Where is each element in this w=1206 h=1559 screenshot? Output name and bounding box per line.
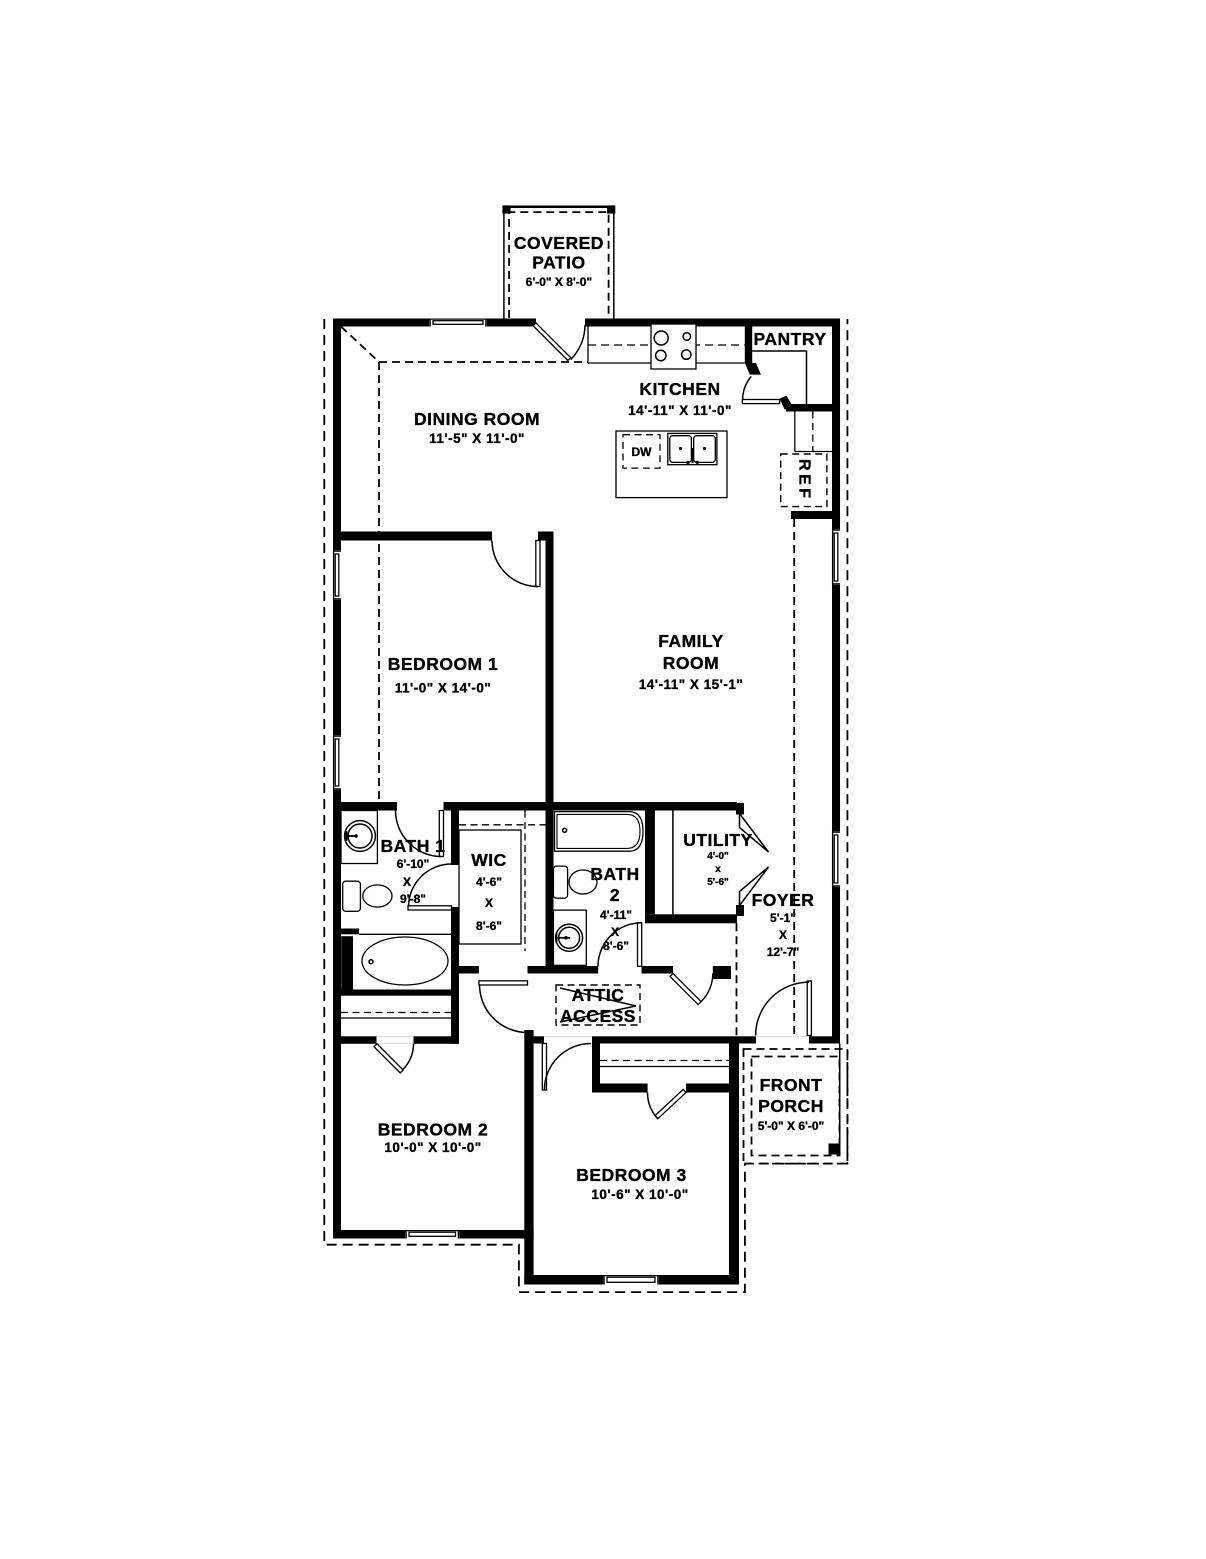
svg-text:REF: REF (796, 459, 813, 502)
svg-text:BATH 1: BATH 1 (381, 836, 446, 856)
svg-text:11'-0" X 14'-0": 11'-0" X 14'-0" (395, 681, 492, 696)
svg-text:PATIO: PATIO (532, 253, 585, 273)
svg-text:6'-0" X 8'-0": 6'-0" X 8'-0" (526, 275, 592, 289)
svg-text:X: X (403, 875, 411, 889)
svg-text:8'-6": 8'-6" (603, 939, 629, 953)
svg-text:8'-6": 8'-6" (476, 919, 502, 933)
svg-text:6'-10": 6'-10" (397, 857, 430, 871)
svg-text:5'-1": 5'-1" (770, 911, 796, 925)
svg-text:DW: DW (632, 445, 653, 459)
svg-text:ROOM: ROOM (663, 653, 719, 673)
svg-text:DINING ROOM: DINING ROOM (414, 409, 540, 429)
svg-text:PANTRY: PANTRY (754, 329, 827, 349)
svg-text:UTILITY: UTILITY (683, 830, 753, 850)
svg-text:5'-0" X 6'-0": 5'-0" X 6'-0" (758, 1119, 824, 1133)
svg-text:10'-6" X 10'-0": 10'-6" X 10'-0" (591, 1187, 688, 1202)
svg-text:10'-0" X 10'-0": 10'-0" X 10'-0" (384, 1140, 481, 1155)
svg-text:x: x (715, 864, 721, 875)
svg-text:FAMILY: FAMILY (658, 631, 724, 651)
svg-text:X: X (611, 925, 619, 939)
svg-text:COVERED: COVERED (514, 233, 604, 253)
svg-text:PORCH: PORCH (758, 1096, 824, 1116)
svg-text:KITCHEN: KITCHEN (639, 379, 720, 399)
svg-text:ACCESS: ACCESS (560, 1006, 636, 1026)
svg-text:14'-11" X 15'-1": 14'-11" X 15'-1" (639, 677, 744, 692)
svg-text:BATH: BATH (590, 864, 639, 884)
svg-text:14'-11" X 11'-0": 14'-11" X 11'-0" (628, 403, 732, 418)
svg-text:9'-8": 9'-8" (400, 892, 426, 906)
svg-text:FOYER: FOYER (752, 890, 815, 910)
svg-text:11'-5" X 11'-0": 11'-5" X 11'-0" (429, 431, 525, 446)
svg-text:X: X (779, 928, 787, 942)
svg-text:X: X (485, 896, 493, 910)
svg-text:12'-7": 12'-7" (767, 945, 800, 959)
svg-text:4'-11": 4'-11" (600, 908, 632, 922)
svg-text:4'-0": 4'-0" (707, 851, 729, 862)
svg-text:FRONT: FRONT (760, 1075, 823, 1095)
svg-text:ATTIC: ATTIC (572, 985, 625, 1005)
svg-text:2: 2 (610, 885, 620, 905)
svg-text:5'-6": 5'-6" (707, 877, 729, 888)
svg-text:WIC: WIC (471, 850, 507, 870)
svg-text:BEDROOM 3: BEDROOM 3 (576, 1165, 686, 1185)
svg-text:BEDROOM 1: BEDROOM 1 (388, 654, 498, 674)
svg-text:4'-6": 4'-6" (476, 875, 502, 889)
svg-text:BEDROOM 2: BEDROOM 2 (378, 1120, 488, 1140)
